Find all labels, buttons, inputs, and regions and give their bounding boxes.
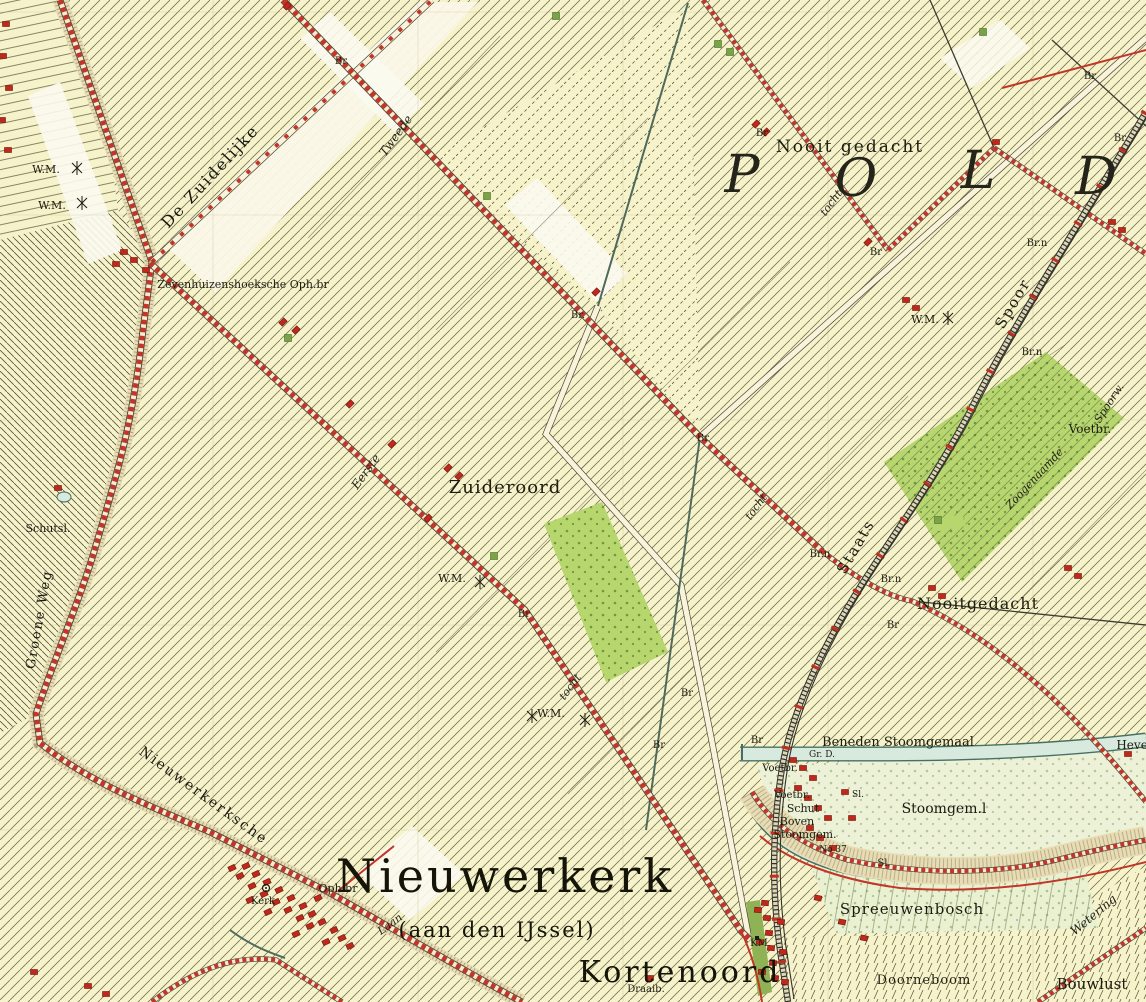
- map-label: Nooit gedacht: [776, 137, 924, 157]
- building: [761, 900, 768, 906]
- map-label: (aan den IJssel): [398, 918, 595, 942]
- map-label: Stoomgem.: [773, 828, 836, 841]
- tree-plot: [715, 41, 722, 48]
- map-label: Beneden Stoomgemaal: [822, 735, 974, 750]
- building: [0, 54, 7, 59]
- map-label: Br: [751, 735, 763, 746]
- tree-plot: [285, 335, 292, 342]
- map-label: Voetbr.: [761, 763, 798, 774]
- building: [3, 22, 10, 27]
- map-label: Br: [870, 247, 882, 258]
- building: [143, 268, 150, 273]
- building: [131, 258, 138, 263]
- map-label: Draaib.: [627, 984, 665, 995]
- building: [767, 945, 774, 951]
- building: [929, 586, 936, 591]
- map-label: P: [724, 145, 761, 205]
- tree-plot: [553, 13, 560, 20]
- map-label: KM: [750, 938, 768, 949]
- map-label: Spreeuwenbosch: [840, 900, 984, 918]
- building: [1065, 566, 1072, 571]
- map-label: L: [960, 141, 996, 201]
- building: [814, 895, 822, 901]
- building: [777, 919, 784, 925]
- map-label: Br: [1084, 71, 1096, 82]
- map-label: Br: [756, 128, 768, 139]
- building: [838, 919, 846, 925]
- map-label: W.M.: [32, 163, 60, 176]
- building: [842, 790, 849, 795]
- map-label: Voetbr.: [773, 790, 810, 801]
- building: [781, 979, 788, 985]
- map-label: Br: [681, 688, 693, 699]
- map-label: D: [1074, 147, 1117, 207]
- map-label: W.M.: [537, 707, 565, 720]
- map-label: W.M.: [438, 572, 466, 585]
- building: [800, 766, 807, 771]
- building: [825, 816, 832, 821]
- map-label: Voetbr.: [1068, 422, 1112, 436]
- map-label: Doorneboom: [877, 973, 972, 988]
- building: [913, 306, 920, 311]
- tree-plot: [935, 517, 942, 524]
- map-label: Br: [1114, 133, 1126, 144]
- topographic-map: POLDNooit gedachtZuideroordNooitgedachtN…: [0, 0, 1146, 1002]
- map-label: Br: [518, 609, 530, 620]
- map-label: Stoomgem.l: [902, 801, 987, 817]
- map-canvas: POLDNooit gedachtZuideroordNooitgedachtN…: [0, 0, 1146, 1002]
- map-label: Oph.br: [319, 882, 359, 895]
- map-label: Br.: [571, 310, 585, 321]
- map-label: Bouwlust: [1057, 975, 1128, 993]
- map-label: Schut: [787, 802, 820, 815]
- map-label: Sl.: [877, 858, 890, 869]
- map-label: Br.: [335, 56, 349, 67]
- map-label: Schutsl.: [26, 522, 71, 535]
- building: [1119, 228, 1126, 233]
- map-label: Br.n: [881, 574, 902, 585]
- map-label: Zevenhuizenshoeksche Oph.br: [157, 278, 329, 291]
- tree-plot: [980, 29, 987, 36]
- map-label: Sl.: [852, 790, 864, 800]
- tree-plot: [484, 193, 491, 200]
- building: [763, 915, 770, 921]
- map-label: Nieuwerkerk: [336, 849, 674, 903]
- map-label: Br: [887, 620, 899, 631]
- building: [810, 776, 817, 781]
- building: [1125, 752, 1132, 757]
- map-label: Boven: [780, 815, 815, 828]
- map-label: Nooitgedacht: [917, 594, 1039, 613]
- map-label: Br.n: [810, 549, 831, 560]
- map-label: Kortenoord: [579, 955, 782, 990]
- building: [1109, 220, 1116, 225]
- building: [1075, 574, 1082, 579]
- map-label: Br.n: [1027, 238, 1048, 249]
- building: [790, 758, 797, 763]
- building: [85, 984, 92, 989]
- building: [754, 907, 761, 913]
- map-label: Br: [697, 433, 709, 444]
- church-icon-dot: [265, 887, 267, 889]
- map-label: Br: [653, 740, 665, 751]
- building: [113, 262, 120, 267]
- map-label: Zuideroord: [449, 477, 561, 498]
- building: [765, 930, 772, 936]
- map-label: Kerk: [251, 896, 276, 907]
- building: [0, 118, 6, 123]
- building: [121, 250, 128, 255]
- building: [5, 148, 12, 153]
- map-label: Hevel: [1116, 738, 1146, 752]
- map-label: W.M.: [38, 199, 66, 212]
- tree-plot: [727, 49, 734, 56]
- building: [31, 970, 38, 975]
- building: [779, 949, 786, 955]
- map-label: Br.n: [1022, 347, 1043, 358]
- building: [860, 935, 868, 941]
- building: [103, 992, 110, 997]
- map-label: Gr. D.: [809, 750, 835, 760]
- tree-plot: [491, 553, 498, 560]
- building: [55, 486, 62, 491]
- building: [849, 816, 856, 821]
- map-label: No 37: [819, 845, 847, 855]
- building: [903, 298, 910, 303]
- map-label: W.M.: [911, 313, 939, 326]
- building: [6, 86, 13, 91]
